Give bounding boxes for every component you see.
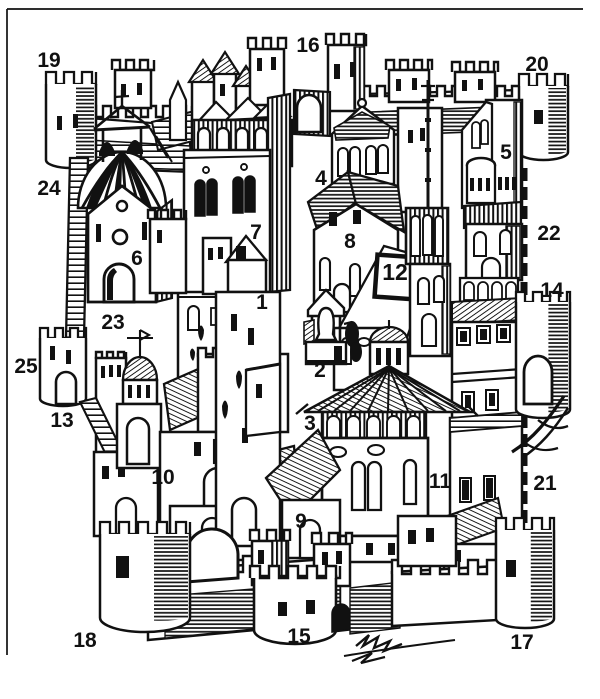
svg-text:10: 10	[151, 466, 174, 489]
svg-text:20: 20	[525, 53, 548, 76]
svg-text:13: 13	[50, 409, 73, 432]
svg-text:18: 18	[73, 629, 97, 652]
svg-text:24: 24	[37, 177, 61, 200]
svg-text:14: 14	[540, 279, 564, 302]
svg-text:22: 22	[537, 222, 560, 245]
svg-text:3: 3	[304, 412, 316, 435]
svg-text:11: 11	[429, 470, 452, 493]
svg-text:1: 1	[256, 291, 268, 314]
svg-text:15: 15	[287, 625, 311, 648]
svg-text:16: 16	[296, 34, 319, 57]
svg-text:9: 9	[295, 510, 307, 533]
svg-text:5: 5	[500, 141, 512, 164]
svg-text:25: 25	[14, 355, 38, 378]
svg-text:8: 8	[344, 230, 356, 253]
svg-text:23: 23	[101, 311, 124, 334]
svg-text:4: 4	[315, 167, 327, 190]
svg-text:2: 2	[314, 359, 326, 382]
svg-text:6: 6	[131, 247, 143, 270]
svg-text:12: 12	[382, 259, 408, 285]
svg-text:7: 7	[250, 221, 262, 244]
svg-text:17: 17	[510, 631, 533, 654]
svg-text:19: 19	[37, 49, 60, 72]
svg-text:21: 21	[533, 472, 557, 495]
